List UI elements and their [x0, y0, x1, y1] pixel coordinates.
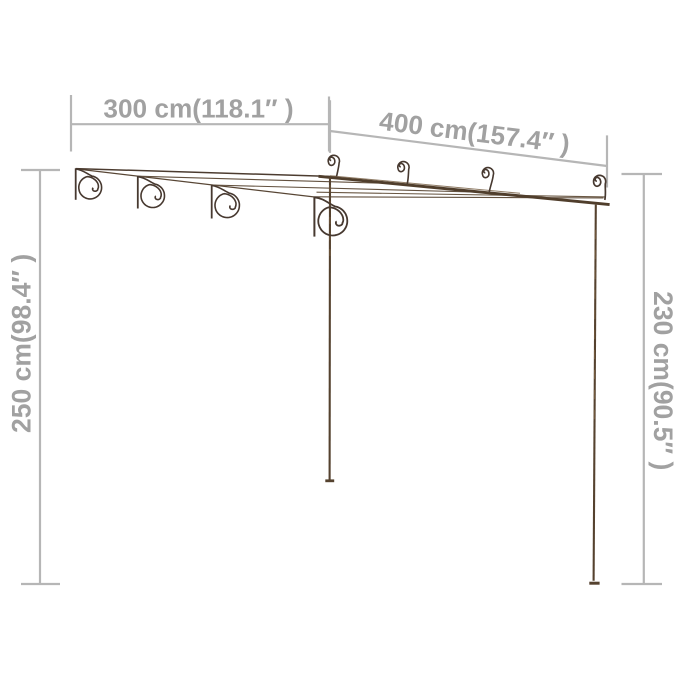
svg-text:300 cm(118.1″ ): 300 cm(118.1″ ): [103, 94, 293, 124]
svg-text:250 cm(98.4″ ): 250 cm(98.4″ ): [7, 254, 37, 433]
svg-text:230 cm(90.5″ ): 230 cm(90.5″ ): [648, 291, 678, 470]
